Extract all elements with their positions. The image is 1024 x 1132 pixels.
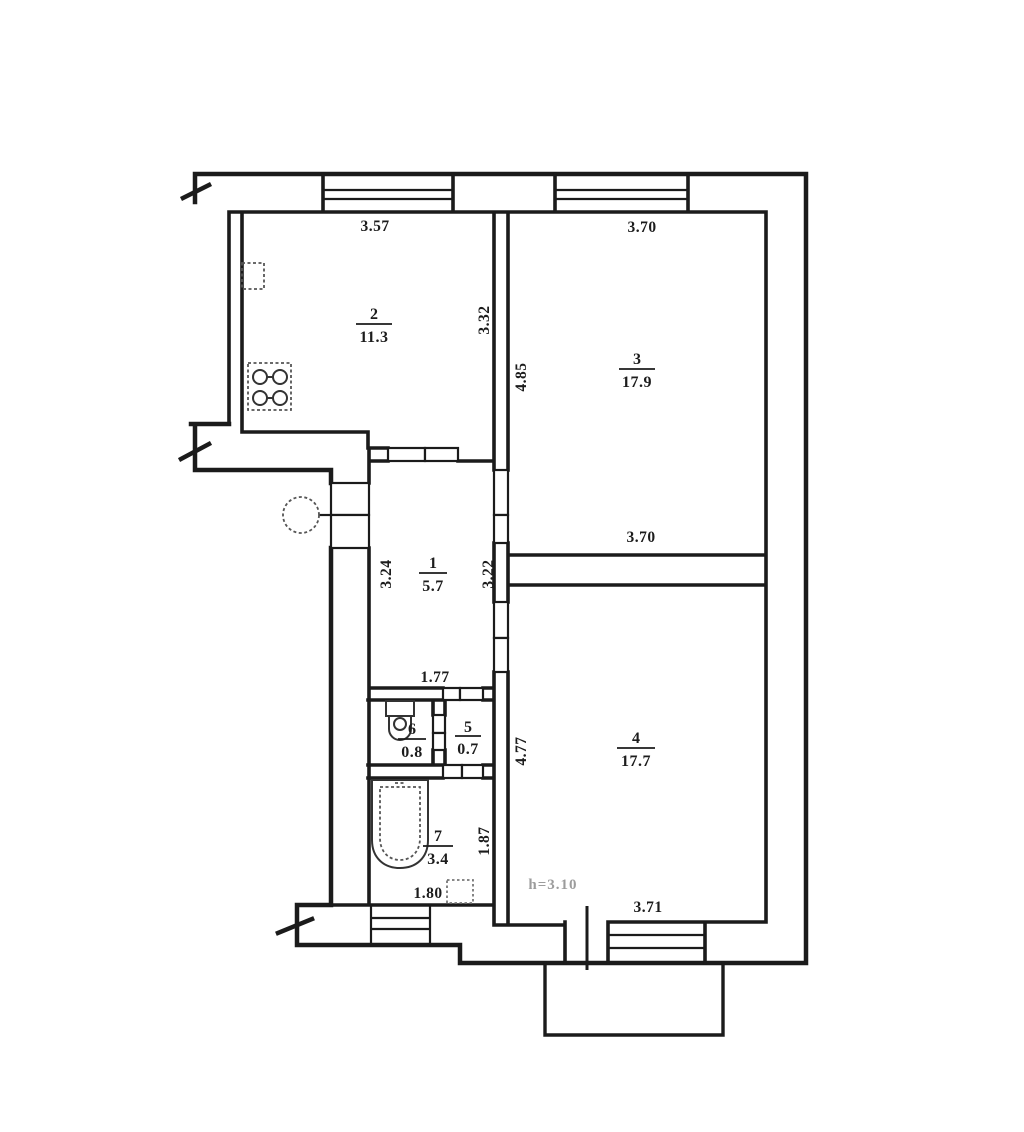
room-3-area: 17.9 — [622, 374, 652, 391]
room-4-number: 4 — [632, 730, 640, 747]
door-icon — [388, 448, 425, 461]
dim-room3-bottom: 3.70 — [626, 529, 655, 546]
dim-room3-left: 4.85 — [513, 362, 530, 391]
door-icon — [433, 733, 445, 750]
room-3-label: 3 17.9 — [619, 351, 655, 391]
door-icon — [331, 515, 369, 548]
ceiling-height-note: h=3.10 — [528, 877, 577, 893]
room-3-number: 3 — [633, 351, 641, 368]
room-4-label: 4 17.7 — [617, 730, 655, 770]
window-icon — [555, 190, 688, 199]
room-1-label: 1 5.7 — [419, 555, 447, 595]
window-icon — [371, 905, 430, 943]
room-5-area: 0.7 — [457, 741, 479, 758]
room-6-label: 6 0.8 — [398, 721, 426, 761]
dim-room4-left: 4.77 — [513, 736, 530, 765]
dim-room1-left: 3.24 — [378, 559, 395, 588]
exterior-outline — [191, 174, 806, 963]
door-icon — [443, 765, 462, 778]
room-7-area: 3.4 — [427, 851, 449, 868]
sink-icon — [447, 880, 473, 903]
dim-room7-bottom: 1.80 — [413, 885, 442, 902]
vent-box-icon — [242, 263, 264, 289]
balcony-outline — [545, 963, 723, 1035]
room-7-number: 7 — [434, 828, 442, 845]
dimension-labels: 3.57 3.32 3.70 4.85 3.70 3.24 3.22 1.77 … — [360, 218, 662, 916]
room-1-number: 1 — [429, 555, 437, 572]
room-2-area: 11.3 — [359, 329, 388, 346]
room-4-area: 17.7 — [621, 753, 651, 770]
room-2-number: 2 — [370, 306, 378, 323]
column-icon — [283, 497, 319, 533]
room-6-number: 6 — [408, 721, 416, 738]
door-icon — [433, 715, 445, 733]
bathtub-icon — [372, 780, 428, 868]
door-icon — [331, 483, 369, 515]
dim-room3-top: 3.70 — [627, 219, 656, 236]
window-icon — [608, 935, 705, 948]
door-icon — [425, 448, 458, 461]
dim-room4-bottom: 3.71 — [633, 899, 662, 916]
door-icon — [460, 688, 483, 700]
dim-room1-bottom: 1.77 — [420, 669, 449, 686]
floor-plan-sheet: 1 5.7 2 11.3 3 17.9 4 17.7 5 0.7 6 0.8 — [0, 0, 1024, 1132]
door-icon — [462, 765, 483, 778]
door-icon — [443, 688, 460, 700]
room-6-area: 0.8 — [401, 744, 423, 761]
dim-room2-right: 3.32 — [476, 305, 493, 334]
interior-walls — [229, 174, 766, 963]
floor-plan-drawing: 1 5.7 2 11.3 3 17.9 4 17.7 5 0.7 6 0.8 — [0, 0, 1024, 1132]
door-icon — [494, 638, 508, 672]
dim-room7-right: 1.87 — [476, 826, 493, 855]
dim-room1-right: 3.22 — [480, 559, 497, 588]
room-5-label: 5 0.7 — [455, 719, 481, 758]
room-1-area: 5.7 — [422, 578, 444, 595]
dim-room2-top: 3.57 — [360, 218, 389, 235]
room-5-number: 5 — [464, 719, 472, 736]
window-icon — [323, 190, 453, 199]
door-icon — [494, 515, 508, 543]
door-icon — [494, 602, 508, 638]
room-2-label: 2 11.3 — [356, 306, 392, 346]
stove-icon — [248, 363, 291, 410]
door-icon — [494, 470, 508, 515]
interior-wall-lines — [229, 174, 766, 963]
